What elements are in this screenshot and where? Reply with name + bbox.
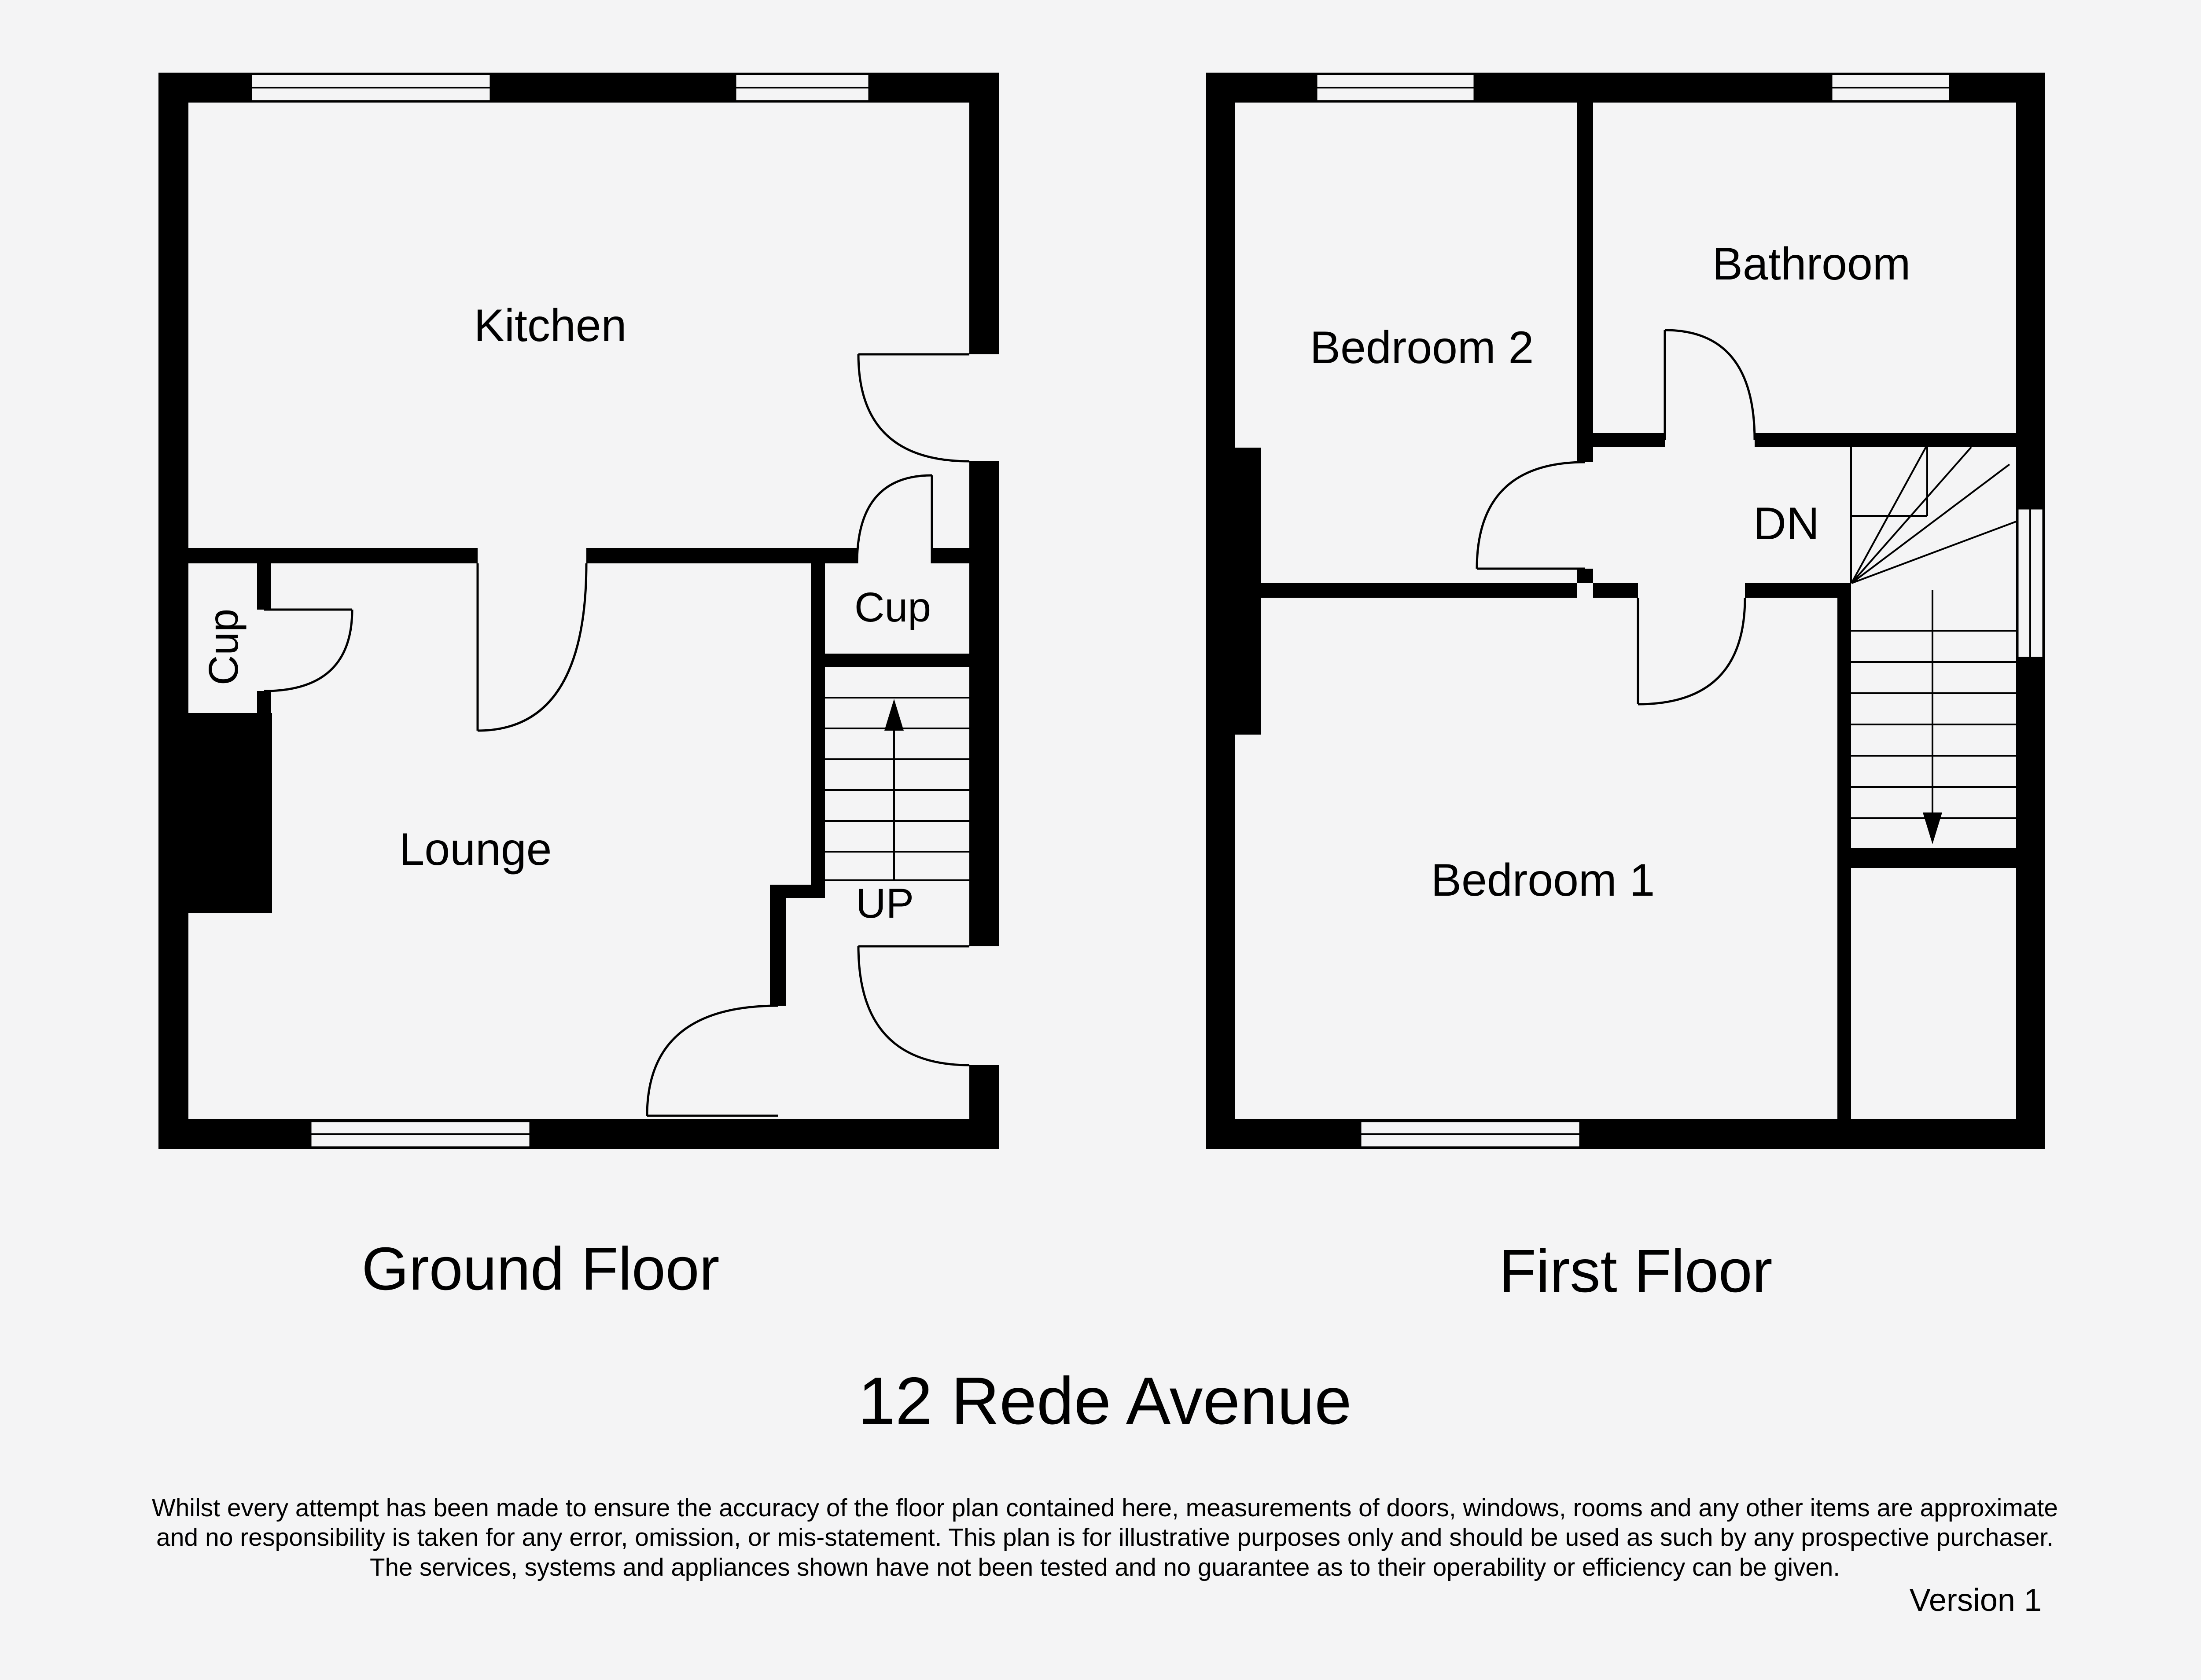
ff-wall-stairs-bottom: [1837, 848, 2016, 868]
plan-titles: Ground Floor First Floor 12 Rede Avenue: [361, 1235, 1772, 1438]
ff-wall-bath-bottom-left: [1593, 433, 1665, 447]
ff-wall-bed1-top-right: [1745, 583, 1837, 598]
ff-wall-bed2-bath-divider: [1577, 103, 1593, 447]
gf-label-lounge: Lounge: [399, 824, 552, 875]
gf-window-kitchen-right: [735, 74, 869, 101]
disclaimer-block: Whilst every attempt has been made to en…: [152, 1494, 2058, 1581]
ff-label-bedroom2: Bedroom 2: [1310, 322, 1534, 373]
gf-front-door-opening: [969, 946, 999, 1065]
disclaimer-line-3: The services, systems and appliances sho…: [370, 1553, 1840, 1581]
gf-back-door-opening: [969, 354, 999, 461]
gf-window-lounge: [310, 1121, 530, 1147]
ff-window-bedroom2: [1316, 74, 1475, 101]
gf-label-cupboard-left: Cup: [200, 609, 247, 685]
gf-wall-alcove-stub-top: [257, 563, 271, 610]
gf-wall-cupboard-bottom: [811, 654, 969, 667]
gf-label-cupboard-stairs: Cup: [854, 584, 931, 631]
gf-window-kitchen-left: [251, 74, 491, 101]
disclaimer-line-1: Whilst every attempt has been made to en…: [152, 1494, 2058, 1522]
ff-window-stairs: [2017, 508, 2043, 658]
gf-chimney-breast: [188, 713, 272, 913]
ground-floor-title: Ground Floor: [361, 1235, 719, 1303]
gf-wall-kitchen-divider-left: [188, 548, 478, 563]
gf-wall-kitchen-divider-mid: [586, 548, 857, 563]
disclaimer-line-2: and no responsibility is taken for any e…: [156, 1523, 2054, 1551]
ff-label-bathroom: Bathroom: [1712, 239, 1911, 290]
gf-label-kitchen: Kitchen: [474, 300, 627, 351]
gf-wall-kitchen-divider-right: [932, 548, 969, 563]
ff-wall-bed1-top-left: [1261, 583, 1577, 598]
address-title: 12 Rede Avenue: [858, 1364, 1351, 1438]
ff-label-dn: DN: [1753, 498, 1819, 549]
gf-label-up: UP: [856, 880, 914, 927]
gf-wall-stairs-left: [811, 563, 825, 885]
ff-wall-bed2-door-stub-bottom: [1577, 569, 1593, 583]
ff-wall-bed1-top-mid: [1593, 583, 1638, 598]
first-floor-title: First Floor: [1499, 1237, 1773, 1305]
floor-plan-canvas: Kitchen Lounge Cup Cup UP: [0, 0, 2201, 1680]
ff-chimney-breast: [1235, 448, 1261, 735]
ff-wall-bed2-door-stub-top: [1577, 447, 1593, 462]
ff-window-bathroom: [1831, 74, 1950, 101]
gf-wall-hall-left: [770, 898, 786, 1006]
ff-wall-bath-bottom-right: [1755, 433, 2016, 447]
ground-floor-plan: Kitchen Lounge Cup Cup UP: [158, 73, 999, 1149]
ff-label-bedroom1: Bedroom 1: [1431, 855, 1655, 906]
gf-wall-hall-jog: [770, 885, 825, 898]
version-label: Version 1: [1910, 1583, 2042, 1618]
ff-window-bedroom1: [1360, 1121, 1580, 1147]
gf-wall-alcove-stub-bottom: [257, 691, 271, 713]
first-floor-plan: Bedroom 2 Bathroom Bedroom 1 DN: [1206, 73, 2045, 1149]
